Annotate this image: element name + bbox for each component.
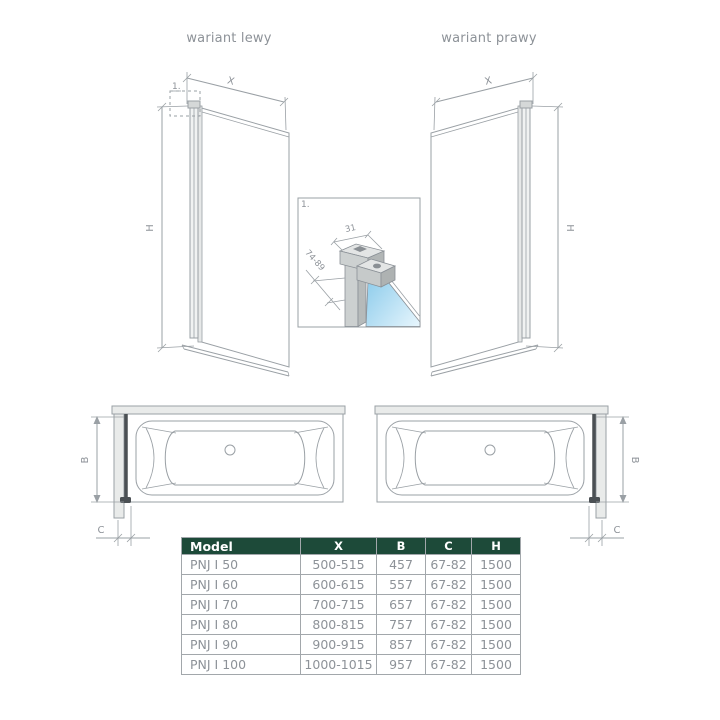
wall-profile-left bbox=[188, 101, 202, 342]
cell-c: 67-82 bbox=[426, 615, 472, 635]
cell-x: 800-815 bbox=[301, 615, 377, 635]
dim-label-x-right: X bbox=[484, 75, 494, 87]
dimensions-table: Model X B C H PNJ I 50 500-515 457 67-82… bbox=[181, 537, 521, 675]
cell-x: 500-515 bbox=[301, 555, 377, 575]
col-header-model: Model bbox=[182, 538, 301, 555]
cell-h: 1500 bbox=[472, 555, 521, 575]
detail-marker-inset: 1. bbox=[301, 200, 310, 210]
cell-c: 67-82 bbox=[426, 575, 472, 595]
dim-label-c-right: C bbox=[614, 525, 621, 536]
cell-h: 1500 bbox=[472, 635, 521, 655]
cell-model: PNJ I 60 bbox=[182, 575, 301, 595]
cell-model: PNJ I 80 bbox=[182, 615, 301, 635]
detail-marker-left: 1. bbox=[172, 82, 181, 92]
cell-x: 700-715 bbox=[301, 595, 377, 615]
right-bathtub-top-view: B C bbox=[375, 406, 640, 546]
cell-model: PNJ I 50 bbox=[182, 555, 301, 575]
cell-c: 67-82 bbox=[426, 555, 472, 575]
cell-b: 657 bbox=[377, 595, 426, 615]
cell-c: 67-82 bbox=[426, 655, 472, 675]
bottom-rail-left bbox=[182, 345, 289, 376]
col-header-b: B bbox=[377, 538, 426, 555]
table-header-row: Model X B C H bbox=[182, 538, 521, 555]
cell-x: 900-915 bbox=[301, 635, 377, 655]
cell-b: 757 bbox=[377, 615, 426, 635]
glass-panel-right bbox=[431, 107, 522, 367]
cell-b: 957 bbox=[377, 655, 426, 675]
dim-label-b-left: B bbox=[80, 456, 91, 463]
cell-h: 1500 bbox=[472, 655, 521, 675]
tub-outline-left bbox=[127, 414, 343, 502]
col-header-h: H bbox=[472, 538, 521, 555]
profile-detail-inset: 1. bbox=[298, 198, 420, 327]
table-row: PNJ I 70 700-715 657 67-82 1500 bbox=[182, 595, 521, 615]
cell-c: 67-82 bbox=[426, 635, 472, 655]
left-variant-drawing: H X 1. bbox=[145, 72, 289, 376]
cell-b: 457 bbox=[377, 555, 426, 575]
tub-outline-right bbox=[377, 414, 593, 502]
dim-label-h-left: H bbox=[145, 224, 156, 232]
table-row: PNJ I 100 1000-1015 957 67-82 1500 bbox=[182, 655, 521, 675]
dim-label-h-right: H bbox=[564, 224, 575, 232]
col-header-x: X bbox=[301, 538, 377, 555]
glass-panel-left bbox=[198, 107, 289, 367]
cell-b: 557 bbox=[377, 575, 426, 595]
bottom-rail-right bbox=[431, 345, 538, 376]
table-row: PNJ I 60 600-615 557 67-82 1500 bbox=[182, 575, 521, 595]
top-wall-left-tub bbox=[112, 406, 345, 414]
left-bathtub-top-view: B C bbox=[80, 406, 345, 546]
dim-label-b-right: B bbox=[629, 457, 640, 464]
cell-x: 600-615 bbox=[301, 575, 377, 595]
dim-label-x-left: X bbox=[226, 75, 236, 87]
cell-b: 857 bbox=[377, 635, 426, 655]
cell-model: PNJ I 70 bbox=[182, 595, 301, 615]
right-variant-drawing: H X bbox=[431, 72, 575, 376]
wall-profile-right bbox=[518, 101, 532, 342]
table-row: PNJ I 50 500-515 457 67-82 1500 bbox=[182, 555, 521, 575]
cell-c: 67-82 bbox=[426, 595, 472, 615]
cell-model: PNJ I 90 bbox=[182, 635, 301, 655]
col-header-c: C bbox=[426, 538, 472, 555]
top-wall-right-tub bbox=[375, 406, 608, 414]
table-row: PNJ I 80 800-815 757 67-82 1500 bbox=[182, 615, 521, 635]
cell-h: 1500 bbox=[472, 595, 521, 615]
height-dimension-left: H bbox=[145, 103, 194, 352]
height-dimension-right: H bbox=[526, 103, 575, 352]
cell-model: PNJ I 100 bbox=[182, 655, 301, 675]
table-row: PNJ I 90 900-915 857 67-82 1500 bbox=[182, 635, 521, 655]
cell-x: 1000-1015 bbox=[301, 655, 377, 675]
cell-h: 1500 bbox=[472, 615, 521, 635]
cell-h: 1500 bbox=[472, 575, 521, 595]
dim-label-c-left: C bbox=[98, 525, 105, 536]
